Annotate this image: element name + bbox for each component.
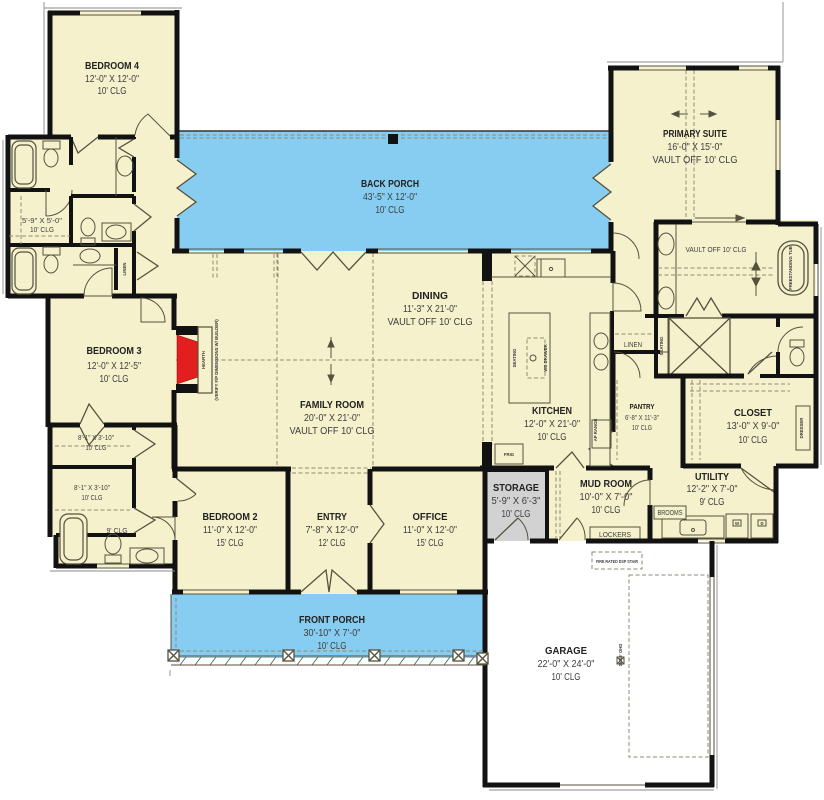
svg-text:BROOMS: BROOMS bbox=[658, 508, 683, 517]
svg-text:VAULT OFF 10' CLG: VAULT OFF 10' CLG bbox=[686, 245, 747, 254]
svg-text:43'-5" X 12'-0": 43'-5" X 12'-0" bbox=[363, 192, 417, 203]
svg-text:ENTRY: ENTRY bbox=[317, 512, 347, 523]
svg-text:10' CLG: 10' CLG bbox=[632, 423, 652, 432]
svg-text:SEATING: SEATING bbox=[512, 348, 517, 367]
svg-text:MUD ROOM: MUD ROOM bbox=[580, 479, 632, 490]
svg-text:OFFICE: OFFICE bbox=[413, 512, 448, 523]
svg-text:12' CLG: 12' CLG bbox=[319, 538, 346, 549]
svg-text:11'-0" X 12'-0": 11'-0" X 12'-0" bbox=[203, 525, 257, 536]
svg-text:KITCHEN: KITCHEN bbox=[532, 406, 572, 417]
svg-text:20'-0" X 21'-0": 20'-0" X 21'-0" bbox=[304, 413, 360, 424]
svg-text:VAULT OFF 10' CLG: VAULT OFF 10' CLG bbox=[653, 155, 738, 166]
svg-text:10' CLG: 10' CLG bbox=[82, 493, 103, 502]
svg-text:SEATING: SEATING bbox=[659, 336, 664, 355]
svg-text:9' CLG: 9' CLG bbox=[700, 497, 725, 508]
svg-text:FRONT PORCH: FRONT PORCH bbox=[299, 615, 365, 626]
svg-text:12'-0" X 12'-5": 12'-0" X 12'-5" bbox=[87, 361, 141, 372]
svg-text:5'-9" X 6'-3": 5'-9" X 6'-3" bbox=[492, 496, 541, 507]
svg-text:10' CLG: 10' CLG bbox=[592, 505, 621, 516]
svg-text:13'-0" X 9'-0": 13'-0" X 9'-0" bbox=[727, 421, 780, 432]
svg-text:LOCKERS: LOCKERS bbox=[599, 530, 631, 539]
svg-text:D: D bbox=[760, 521, 763, 526]
svg-text:STORAGE: STORAGE bbox=[493, 483, 539, 494]
svg-text:10' CLG: 10' CLG bbox=[739, 435, 768, 446]
svg-text:FAMILY ROOM: FAMILY ROOM bbox=[300, 400, 364, 411]
svg-text:7'-8" X 12'-0": 7'-8" X 12'-0" bbox=[306, 525, 359, 536]
svg-text:15' CLG: 15' CLG bbox=[417, 538, 444, 549]
svg-text:12'-0" X 21'-0": 12'-0" X 21'-0" bbox=[524, 419, 580, 430]
svg-text:FREESTANDING TUB: FREESTANDING TUB bbox=[788, 246, 793, 290]
svg-text:PRIMARY SUITE: PRIMARY SUITE bbox=[663, 129, 727, 140]
svg-text:16'X8' OHD: 16'X8' OHD bbox=[618, 644, 623, 667]
svg-text:AP RANGE: AP RANGE bbox=[593, 419, 598, 442]
svg-text:VAULT OFF 10' CLG: VAULT OFF 10' CLG bbox=[290, 426, 375, 437]
svg-text:10' CLG: 10' CLG bbox=[502, 509, 531, 520]
svg-text:DINING: DINING bbox=[412, 291, 448, 302]
svg-text:DRESSER: DRESSER bbox=[799, 417, 804, 439]
svg-text:30'-10" X 7'-0": 30'-10" X 7'-0" bbox=[304, 628, 361, 639]
svg-text:BEDROOM 2: BEDROOM 2 bbox=[203, 512, 258, 523]
svg-text:FRIG: FRIG bbox=[504, 452, 515, 457]
svg-text:CLOSET: CLOSET bbox=[734, 408, 772, 419]
svg-text:10' CLG: 10' CLG bbox=[538, 432, 567, 443]
svg-text:5'-9" X 5'-0": 5'-9" X 5'-0" bbox=[22, 216, 62, 225]
svg-text:VAULT OFF 10' CLG: VAULT OFF 10' CLG bbox=[388, 317, 473, 328]
svg-text:10' CLG: 10' CLG bbox=[376, 205, 405, 216]
svg-text:12'-2" X 7'-0": 12'-2" X 7'-0" bbox=[687, 484, 738, 495]
svg-text:GARAGE: GARAGE bbox=[545, 646, 587, 657]
svg-text:HEARTH: HEARTH bbox=[201, 351, 206, 369]
svg-text:11'-3" X 21'-0": 11'-3" X 21'-0" bbox=[403, 304, 457, 315]
svg-text:8'-1" X 3'-10": 8'-1" X 3'-10" bbox=[74, 483, 110, 492]
svg-text:UTILITY: UTILITY bbox=[695, 472, 729, 483]
svg-text:10' CLG: 10' CLG bbox=[86, 443, 107, 452]
svg-text:10' CLG: 10' CLG bbox=[100, 374, 129, 385]
svg-text:10' CLG: 10' CLG bbox=[318, 641, 347, 652]
svg-text:BEDROOM 3: BEDROOM 3 bbox=[87, 346, 142, 357]
svg-text:(VERIFY F/P DIMENSIONS W/ BUIL: (VERIFY F/P DIMENSIONS W/ BUILDER) bbox=[214, 319, 219, 401]
svg-text:LINEN: LINEN bbox=[624, 340, 642, 349]
svg-text:FIRE RATED DSP STAIR: FIRE RATED DSP STAIR bbox=[596, 559, 639, 564]
svg-text:WD DRAWER: WD DRAWER bbox=[543, 343, 548, 371]
svg-text:8'-1" X 3'-10": 8'-1" X 3'-10" bbox=[78, 433, 114, 442]
svg-text:22'-0" X 24'-0": 22'-0" X 24'-0" bbox=[538, 659, 595, 670]
svg-text:10'-0" X 7'-0": 10'-0" X 7'-0" bbox=[580, 492, 633, 503]
svg-text:10' CLG: 10' CLG bbox=[552, 672, 581, 683]
svg-text:10' CLG: 10' CLG bbox=[98, 86, 127, 97]
svg-text:LINEN: LINEN bbox=[122, 263, 127, 276]
svg-text:16'-0" X 15'-0": 16'-0" X 15'-0" bbox=[668, 142, 723, 153]
svg-text:11'-0" X 12'-0": 11'-0" X 12'-0" bbox=[403, 525, 457, 536]
svg-text:10' CLG: 10' CLG bbox=[30, 225, 54, 234]
svg-text:15' CLG: 15' CLG bbox=[217, 538, 244, 549]
svg-text:BACK PORCH: BACK PORCH bbox=[361, 179, 419, 190]
svg-text:BEDROOM 4: BEDROOM 4 bbox=[85, 61, 139, 72]
svg-text:PANTRY: PANTRY bbox=[630, 402, 655, 411]
svg-text:12'-0" X 12'-0": 12'-0" X 12'-0" bbox=[85, 74, 139, 85]
svg-text:6'-8" X 11'-3": 6'-8" X 11'-3" bbox=[625, 413, 659, 422]
svg-text:9' CLG: 9' CLG bbox=[107, 526, 128, 535]
